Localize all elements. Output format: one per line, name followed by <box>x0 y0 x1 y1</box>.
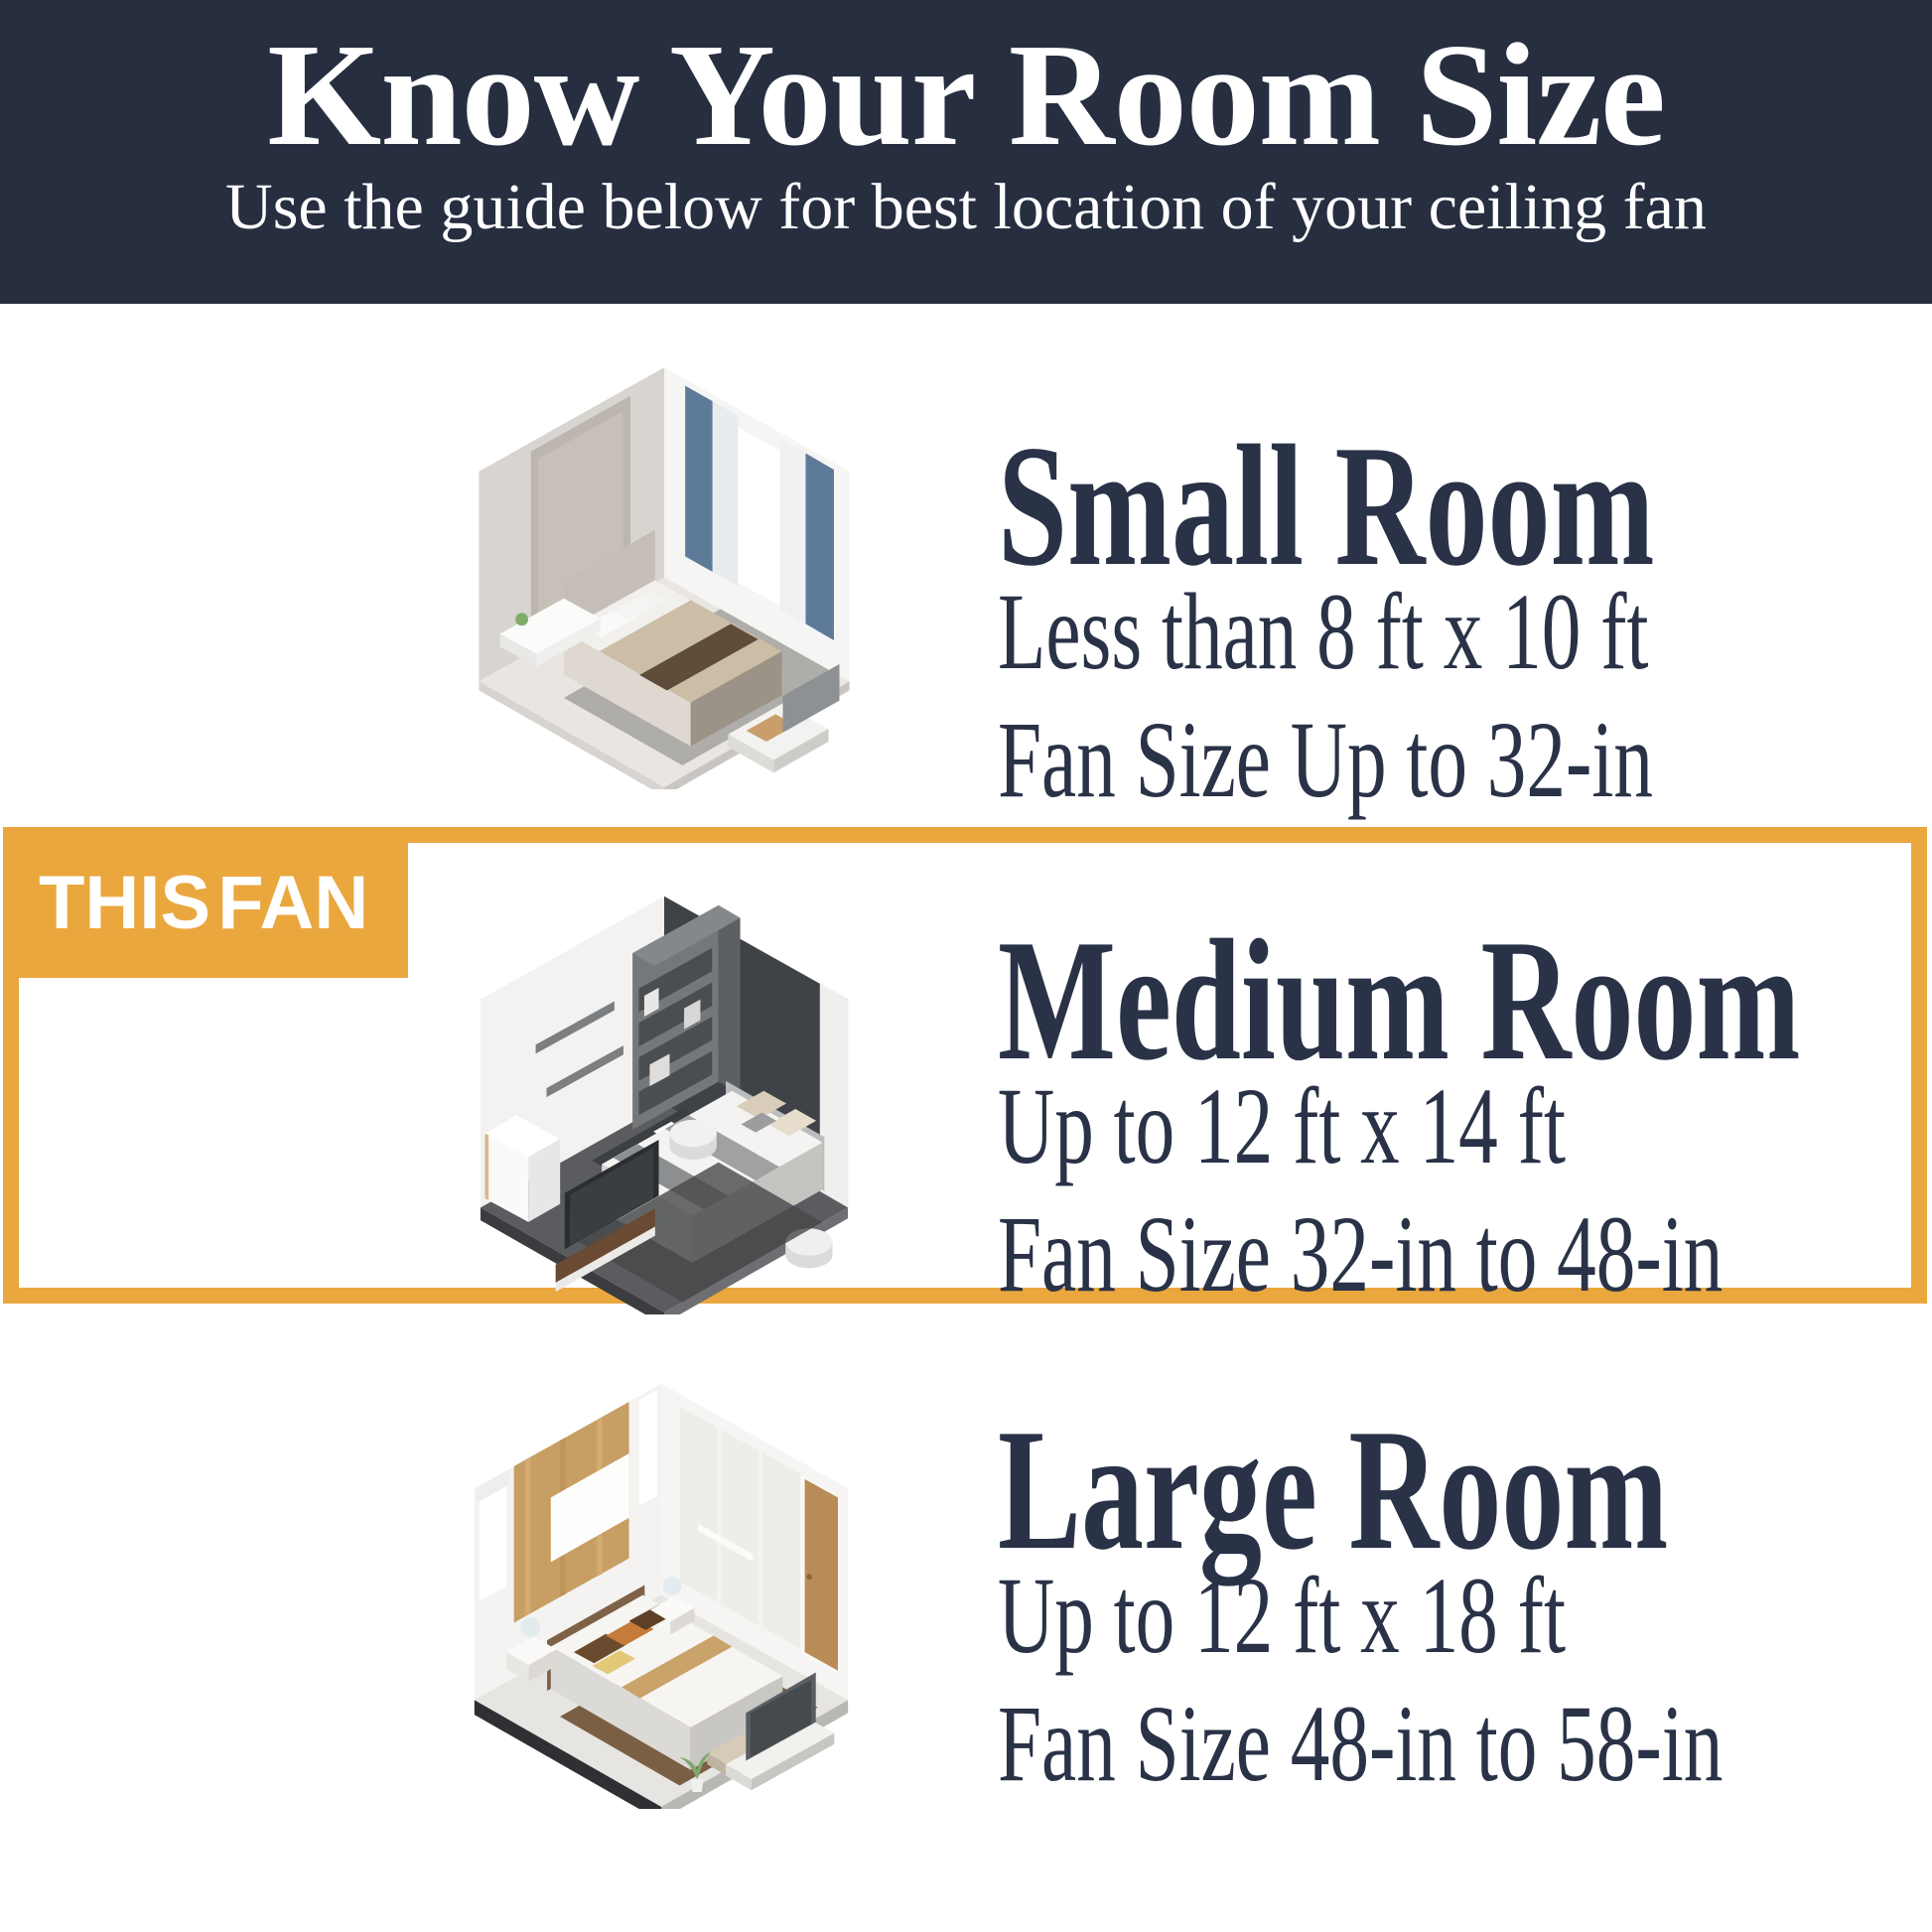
small-room-title: Small Room <box>998 438 1655 574</box>
large-room-details: Up to 12 ft x 18 ft Fan Size 48-in to 58… <box>998 1552 1723 1810</box>
small-room-dimensions: Less than 8 ft x 10 ft <box>998 568 1655 697</box>
small-room-text: Small Room Less than 8 ft x 10 ft Fan Si… <box>998 438 1910 825</box>
medium-room-details: Up to 12 ft x 14 ft Fan Size 32-in to 48… <box>998 1062 1800 1320</box>
large-room-fan-size: Fan Size 48-in to 58-in <box>998 1680 1723 1809</box>
this-fan-badge: THIS FAN <box>3 827 408 978</box>
medium-room-illustration-icon <box>429 862 899 1314</box>
large-room-dimensions: Up to 12 ft x 18 ft <box>998 1552 1723 1681</box>
page-title: Know Your Room Size <box>0 0 1932 169</box>
page-subtitle: Use the guide below for best location of… <box>0 175 1932 240</box>
small-room-illustration-icon <box>427 333 901 789</box>
large-room-title: Large Room <box>998 1422 1723 1558</box>
room-size-guide: Know Your Room Size Use the guide below … <box>0 0 1932 1932</box>
this-fan-badge-label: THIS FAN <box>39 860 368 946</box>
small-room-fan-size: Fan Size Up to 32-in <box>998 696 1655 825</box>
large-room-text: Large Room Up to 12 ft x 18 ft Fan Size … <box>998 1422 1932 1809</box>
large-room-illustration-icon <box>422 1348 900 1809</box>
small-room-details: Less than 8 ft x 10 ft Fan Size Up to 32… <box>998 568 1655 826</box>
medium-room-text: Medium Room Up to 12 ft x 14 ft Fan Size… <box>998 932 1932 1319</box>
medium-room-fan-size: Fan Size 32-in to 48-in <box>998 1190 1800 1319</box>
medium-room-title: Medium Room <box>998 932 1800 1068</box>
header-banner: Know Your Room Size Use the guide below … <box>0 0 1932 304</box>
medium-room-dimensions: Up to 12 ft x 14 ft <box>998 1062 1800 1191</box>
